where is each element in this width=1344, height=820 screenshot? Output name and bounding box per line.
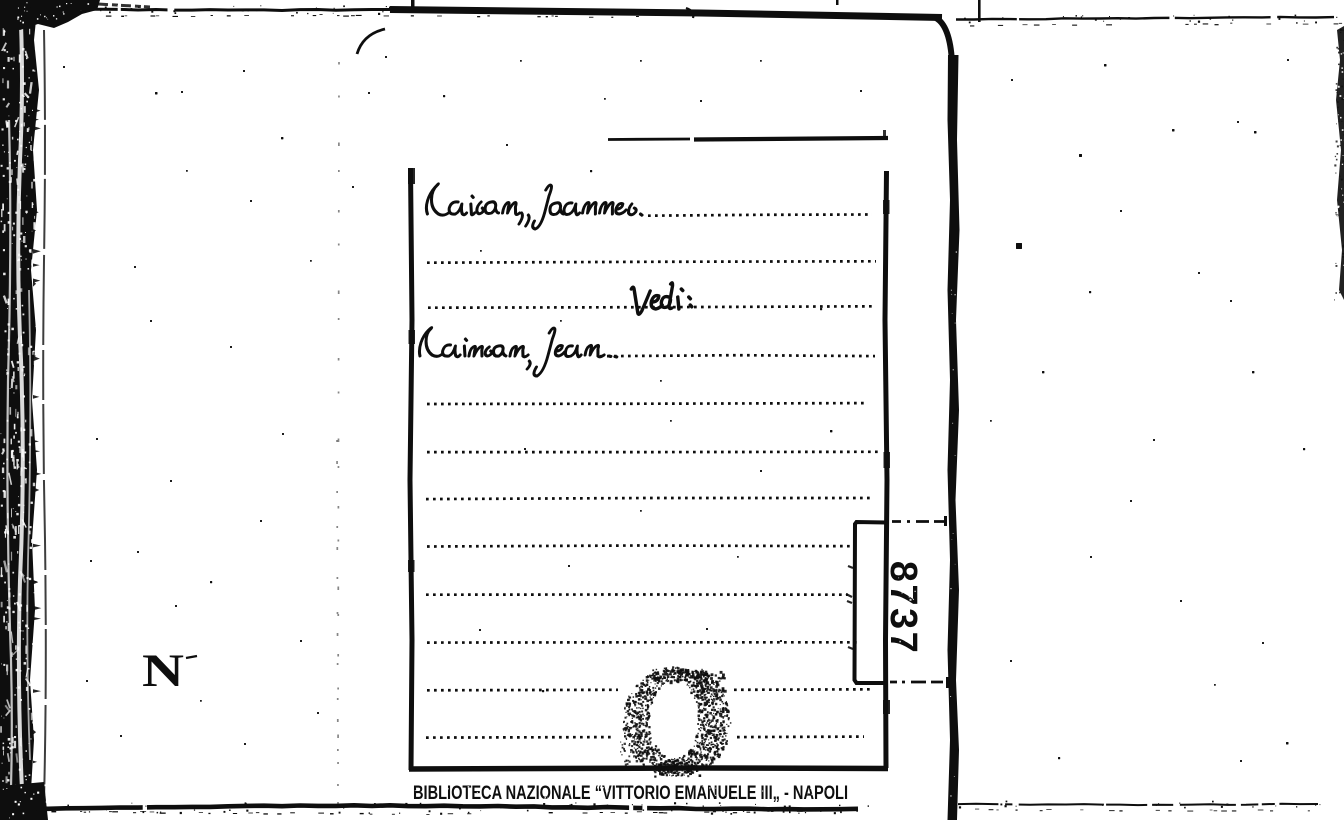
svg-text:BIBLIOTECA NAZIONALE “VITTORIO: BIBLIOTECA NAZIONALE “VITTORIO EMANUELE … (413, 783, 848, 804)
svg-text:8737: 8737 (882, 561, 924, 656)
svg-text:N: N (142, 645, 184, 697)
